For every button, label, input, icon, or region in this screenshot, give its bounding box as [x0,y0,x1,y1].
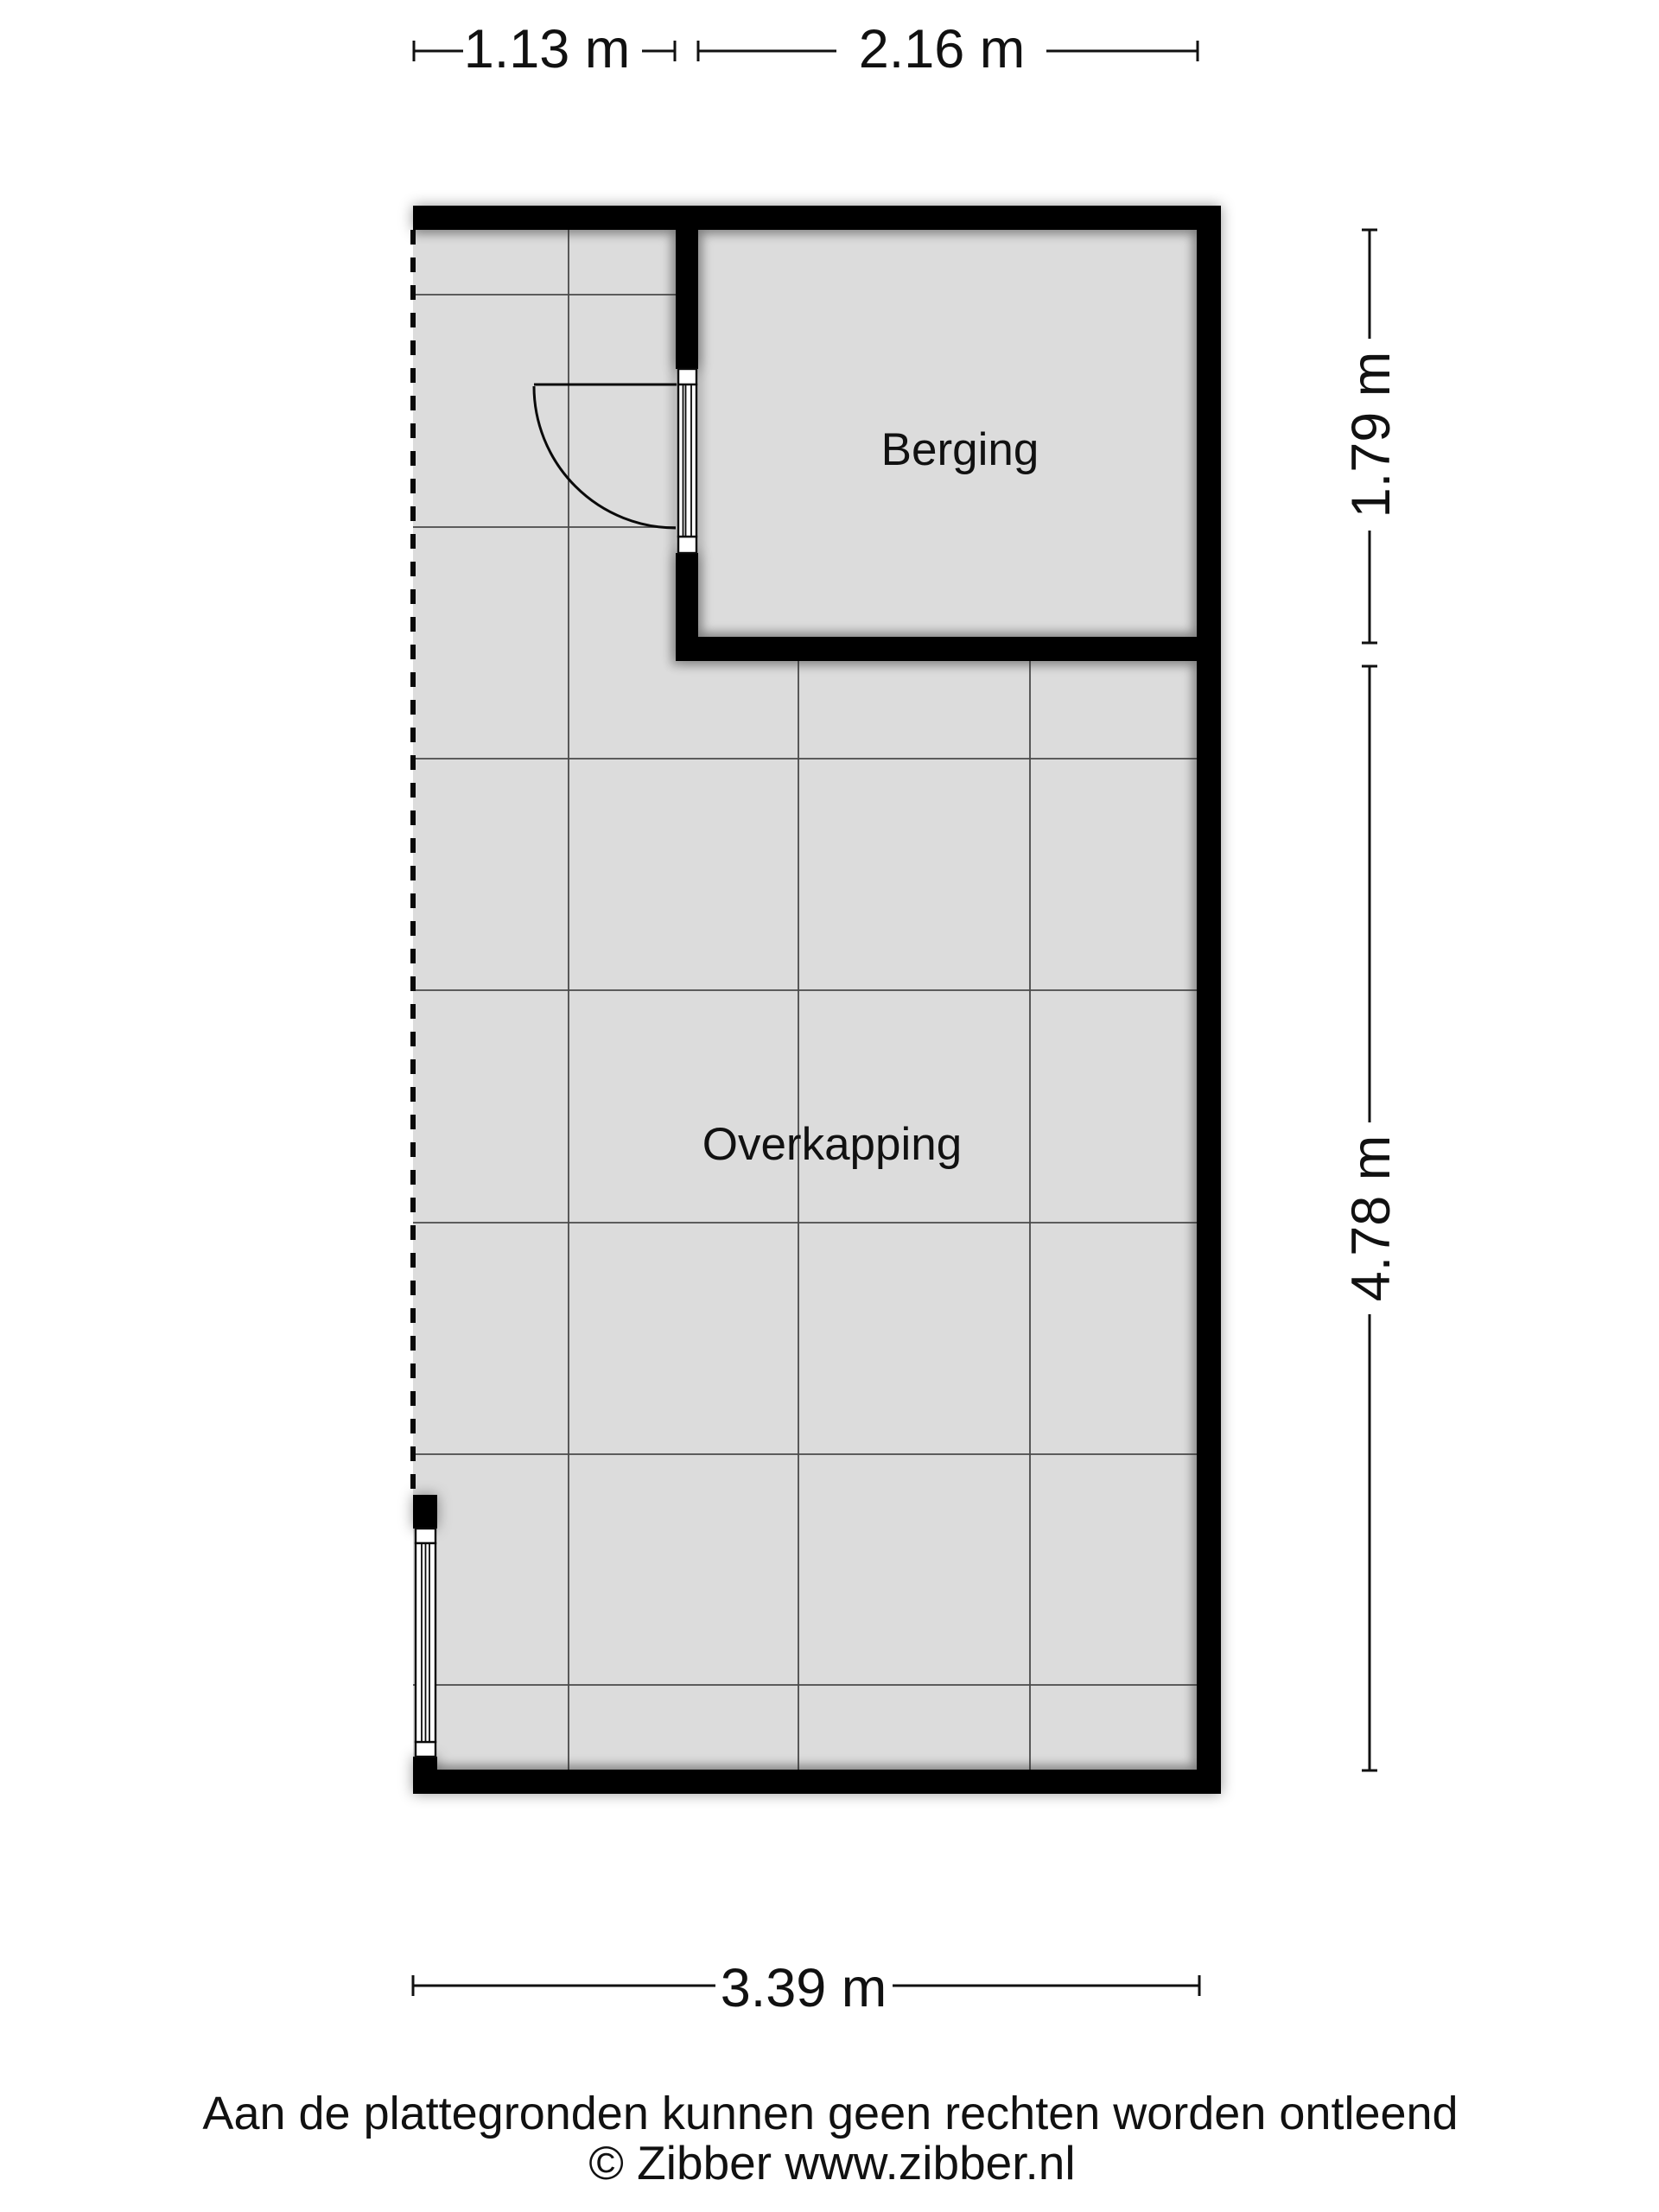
svg-text:Berging: Berging [881,424,1039,475]
svg-text:© Zibber www.zibber.nl: © Zibber www.zibber.nl [588,2136,1075,2190]
svg-text:4.78 m: 4.78 m [1341,1135,1402,1302]
svg-text:2.16 m: 2.16 m [859,19,1026,79]
svg-text:1.13 m: 1.13 m [464,19,631,79]
svg-text:3.39 m: 3.39 m [721,1958,887,2018]
svg-text:Overkapping: Overkapping [702,1119,963,1170]
svg-text:1.79 m: 1.79 m [1341,352,1402,518]
svg-text:Aan de plattegronden kunnen ge: Aan de plattegronden kunnen geen rechten… [202,2088,1458,2139]
